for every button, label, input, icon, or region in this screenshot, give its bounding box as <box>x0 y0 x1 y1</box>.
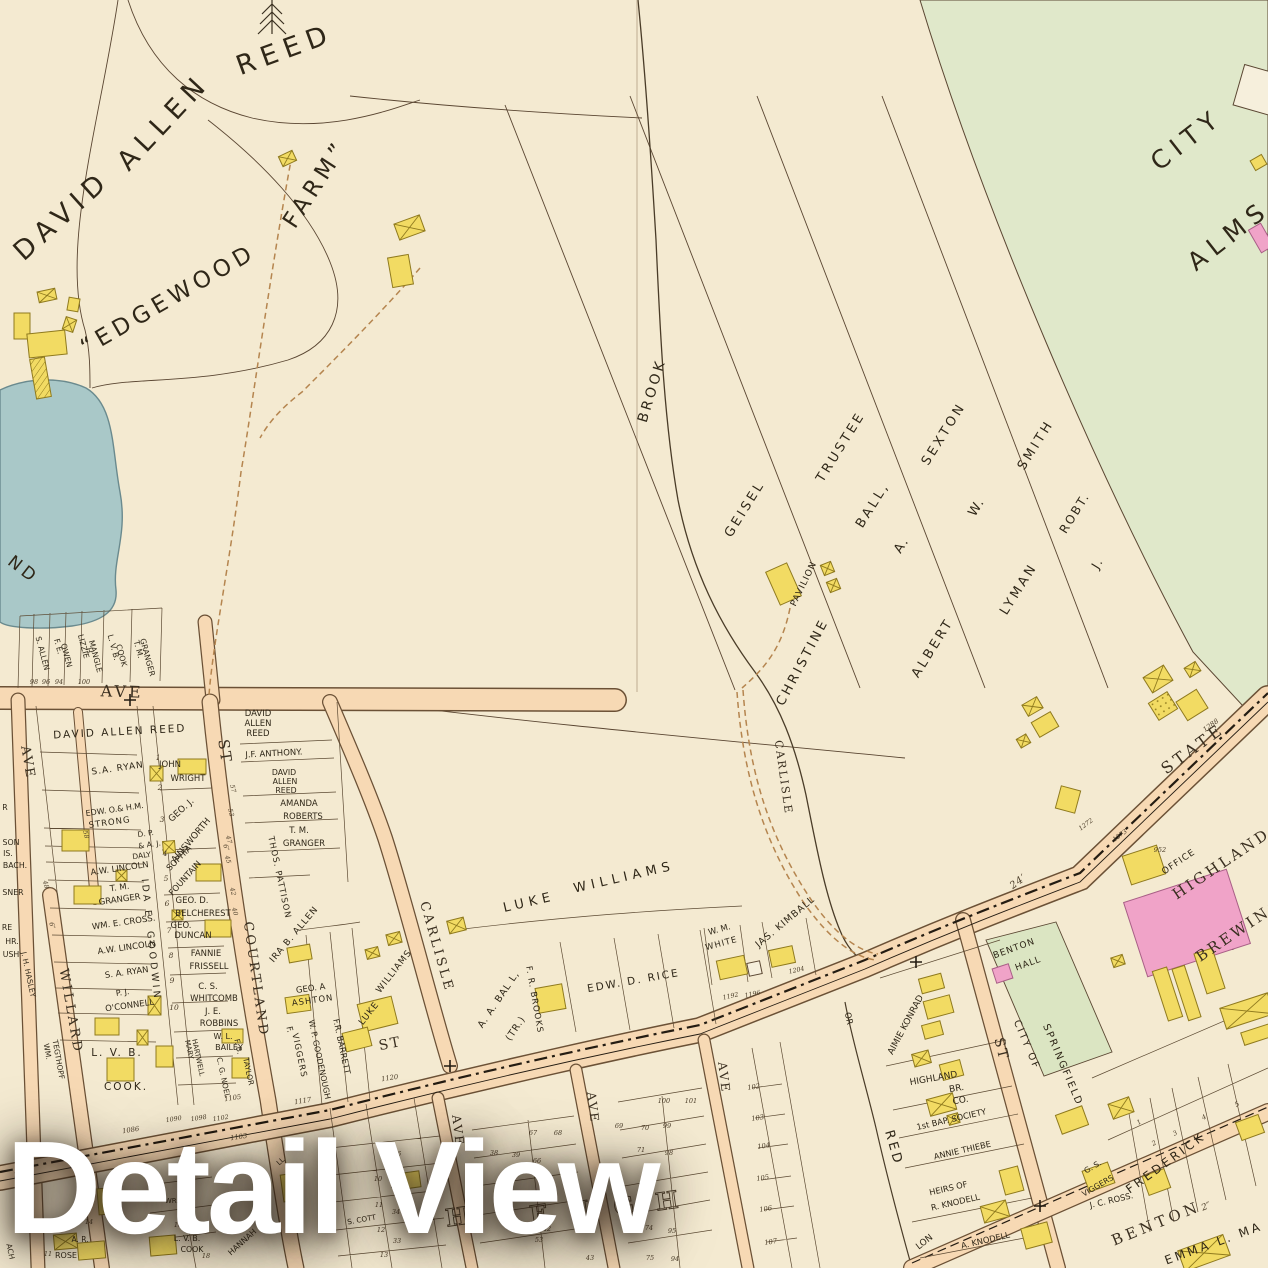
lot-number: 101 <box>685 1097 697 1105</box>
map-label: BACH. <box>3 861 27 870</box>
lot-number: 96 <box>42 678 50 686</box>
building <box>67 297 80 312</box>
map-label: IS. <box>3 849 13 858</box>
pond <box>0 380 122 628</box>
map-label: REED <box>246 729 270 739</box>
building <box>95 1018 119 1035</box>
map-label: FANNIE <box>191 949 222 959</box>
map-label: WHITCOMB <box>190 994 238 1004</box>
building <box>107 1058 134 1081</box>
building <box>178 759 206 774</box>
lot-number: 100 <box>658 1097 670 1105</box>
map-label: REED <box>275 786 296 795</box>
map-label: P. J. <box>115 987 130 998</box>
map-label: HR. <box>5 937 18 946</box>
map-label: R <box>2 803 8 812</box>
lot-number: 98 <box>30 678 38 686</box>
page-title: Detail View <box>6 1112 1266 1263</box>
lot-number: 9 <box>170 976 175 985</box>
lot-number: 94 <box>55 678 63 686</box>
map-label: GEO. <box>170 921 191 931</box>
map-label: BELCHEREST <box>175 909 231 919</box>
map-label: ROBBINS <box>200 1019 239 1029</box>
map-label: AMANDA <box>280 799 318 809</box>
building <box>156 1046 173 1067</box>
map-label: USH <box>3 950 20 959</box>
map-label: SNER <box>2 888 24 897</box>
building <box>27 330 67 358</box>
atlas-map-page: DAVIDALLENREED“EDGEWOODFARM”NDCITYALMSBR… <box>0 0 1268 1268</box>
map-label: C. S. <box>198 982 217 992</box>
map-label: DUNCAN <box>174 931 211 941</box>
map-label: JOHN <box>158 760 181 770</box>
building-outline <box>747 961 762 976</box>
map-canvas: DAVIDALLENREED“EDGEWOODFARM”NDCITYALMSBR… <box>0 0 1268 1268</box>
building <box>137 1030 148 1045</box>
map-label: W. L. <box>213 1032 232 1041</box>
lot-number: 3 <box>160 815 165 824</box>
building <box>388 254 414 287</box>
lot-number: 4 <box>162 849 168 858</box>
map-label: GEO. D. <box>176 896 209 906</box>
map-label: L. V. B. <box>91 1047 143 1059</box>
map-label: ALLEN <box>244 719 271 729</box>
map-label: WRIGHT <box>171 774 207 784</box>
map-label: SON <box>3 838 20 847</box>
lot-number: 10 <box>169 1003 179 1012</box>
lot-number: 5 <box>164 874 169 883</box>
lot-number: 6 <box>165 899 170 908</box>
map-label: J. E. <box>204 1007 221 1017</box>
lot-number: 8 <box>169 951 174 960</box>
map-label: T. M. <box>288 826 309 836</box>
map-label: FRISSELL <box>190 962 229 972</box>
lot-number: 2 <box>157 783 163 792</box>
map-label: DAVID <box>245 709 272 719</box>
lot-number: 952 <box>1154 846 1166 854</box>
map-label: ALLEN <box>273 777 298 786</box>
map-label: RE <box>2 923 12 932</box>
street-label: AVE <box>99 681 144 702</box>
map-label: ROBERTS <box>283 812 323 822</box>
lot-number: 100 <box>78 678 90 686</box>
map-label: COOK. <box>104 1081 148 1093</box>
map-label: DAVID <box>272 768 296 777</box>
street-label: ST <box>214 738 235 765</box>
map-label: GRANGER <box>283 839 325 849</box>
building <box>74 886 101 904</box>
